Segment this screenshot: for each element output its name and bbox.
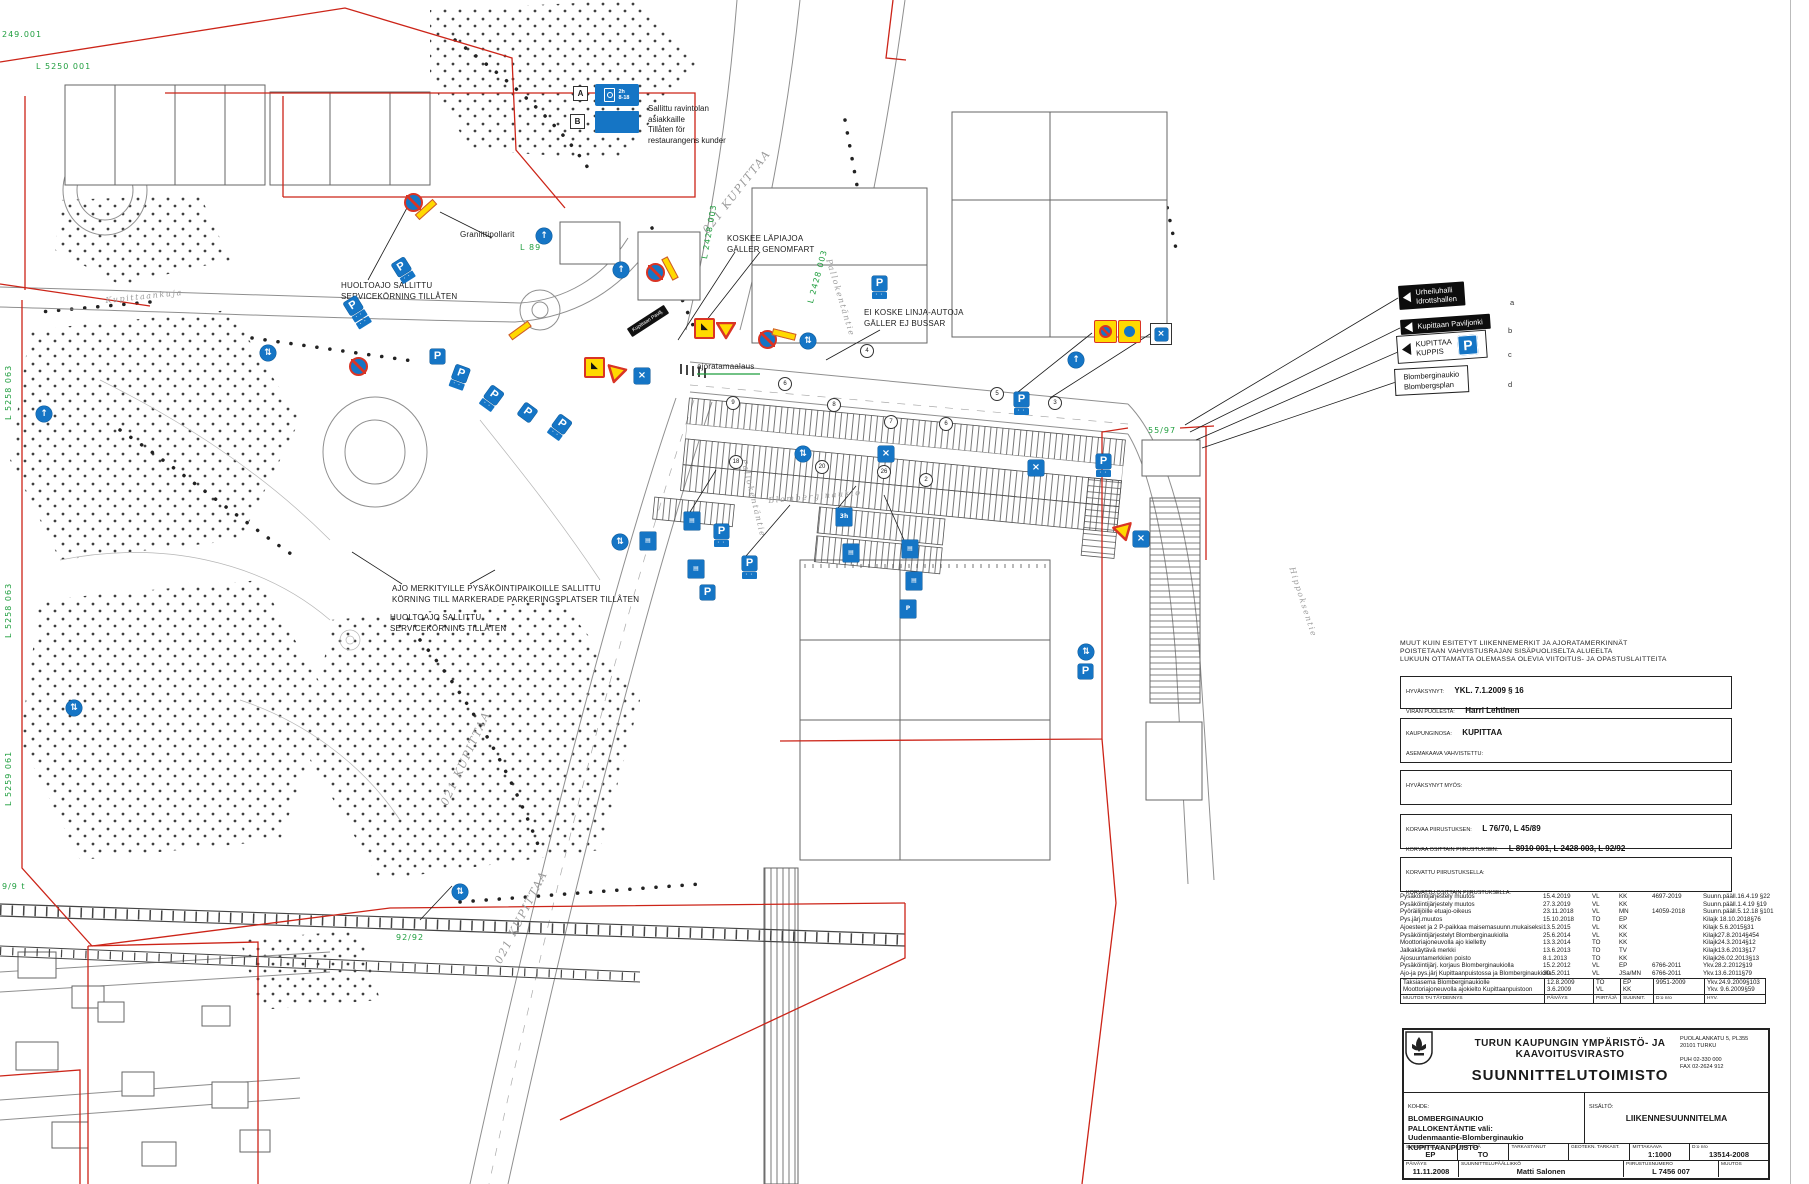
street-label: Kupittaankuja: [105, 288, 183, 305]
legend-sign-blue-area: [595, 111, 639, 133]
title-cell-mittakaava: MITTAKAAVA1:1000: [1629, 1144, 1689, 1160]
title-cell-muutos: MUUTOS: [1718, 1161, 1767, 1177]
title-block: TURUN KAUPUNGIN YMPÄRISTÖ- JA KAAVOITUSV…: [1402, 1028, 1770, 1180]
revision-row: Pysäköintijärj. korjaus Blomberginaukiol…: [1400, 962, 1766, 970]
crossing-arrows-sign: ×: [878, 446, 894, 462]
title-cell-p-iv-ys: PÄIVÄYS11.11.2008: [1404, 1161, 1458, 1177]
legend-key-a: A: [573, 86, 588, 101]
drawing-ref-label: L 2428 003: [806, 249, 829, 305]
street-label: Blomberginaukio: [768, 488, 862, 505]
no-stopping-sign: [646, 263, 665, 282]
revision-table-footer: MUUTOS TAI TÄYDENNYSPÄIVÄYSPIIRTÄJÄSUUNN…: [1401, 994, 1765, 1003]
parking-sign: P: [700, 585, 715, 600]
waypoint-number: 6: [778, 377, 792, 391]
drawing-ref-label: L 5259 061: [4, 751, 13, 806]
drawing-ref-label: L 89: [520, 243, 541, 252]
parking-sign: P· ·: [479, 385, 505, 412]
information-sign: P: [900, 600, 916, 618]
guide-sign-black: Kupittaan Pavilj.: [627, 305, 669, 337]
parking-sign: P· ·: [714, 524, 729, 547]
replaces-part-label: KORVAA OSITTAIN PIIRUSTUKSEN:: [1406, 847, 1498, 853]
mandatory-circle-sign: ⇅: [452, 884, 468, 900]
road-work-sign: ◣: [694, 318, 715, 339]
sisalto-label: SISÄLTÖ:: [1589, 1104, 1613, 1110]
direction-sign-c: KUPITTAAKUPPISP: [1396, 330, 1488, 364]
mandatory-circle-sign: ↑: [36, 406, 52, 422]
waypoint-number: 8: [827, 398, 841, 412]
mandatory-circle-sign: ↑: [613, 262, 629, 278]
behalf-value: Harri Lehtinen: [1465, 706, 1519, 715]
revision-row: Pys.järj.muutos15.10.2018TOEPKilajk 18.1…: [1400, 916, 1766, 924]
approved-value: YKL. 7.1.2009 § 16: [1454, 686, 1523, 695]
title-cell-suunnittelija: SUUNNITTELIJAEP: [1404, 1144, 1457, 1160]
revision-row: Taksiasema Blomberginaukiolle12.8.2009TO…: [1401, 979, 1765, 987]
waypoint-number: 18: [729, 455, 743, 469]
mandatory-yellow-board-sign: [1118, 320, 1141, 343]
drawing-ref-label: 55/97: [1148, 426, 1176, 435]
direction-sign-d: BlomberginaukioBlombergsplan: [1394, 365, 1469, 396]
parking-sign: P· ·: [742, 556, 757, 579]
parking-sign: P· ·: [449, 364, 471, 391]
note-line-2: POISTETAAN VAHVISTUSRAJAN SISÄPUOLISELTA…: [1400, 648, 1730, 656]
revision-row: Ajoesteet ja 2 P-paikkaa maisemasuunn.mu…: [1400, 924, 1766, 932]
mandatory-circle-sign: ⇅: [260, 345, 276, 361]
mandatory-circle-sign: ↑: [536, 228, 552, 244]
mandatory-circle-sign: ⇅: [795, 446, 811, 462]
replaces-label: KORVAA PIIRUSTUKSEN:: [1406, 827, 1472, 833]
arrow-left-icon: UrheiluhalliIdrottshallen: [1398, 281, 1465, 310]
behalf-label: VIRAN PUOLESTA:: [1406, 709, 1455, 715]
sheet-border-line: [1790, 0, 1791, 1184]
revision-row: Moottoriajoneuvolla ajokielto Kupittaanp…: [1401, 986, 1765, 994]
map-annotation: EI KOSKE LINJA-AUTOJAGÄLLER EJ BUSSAR: [864, 308, 964, 329]
parking-sign: P· ·: [1096, 454, 1111, 477]
parking-sign: P: [517, 402, 538, 423]
map-annotation: KOSKEE LÄPIAJOAGÄLLER GENOMFART: [727, 234, 815, 255]
office-name: SUUNNITTELUTOIMISTO: [1460, 1067, 1680, 1084]
also-approved-label: HYVÄKSYNYT MYÖS:: [1406, 783, 1462, 789]
street-label: 021 KUPITTAA: [492, 868, 550, 965]
mandatory-circle-sign: ⇅: [800, 333, 816, 349]
waypoint-number: 6: [939, 417, 953, 431]
title-cell-tarkastanut: TARKASTANUT: [1508, 1144, 1568, 1160]
revision-row: Pyöräilijöille etuajo-oikeus23.11.2018VL…: [1400, 908, 1766, 916]
title-block-cells-row2: PÄIVÄYS11.11.2008SUUNNITTELUPÄÄLLIKKÖMat…: [1404, 1161, 1768, 1177]
crossing-arrows-sign: ×: [1028, 460, 1044, 476]
plan-confirmed-label: ASEMAKAAVA VAHVISTETTU:: [1406, 751, 1483, 757]
waypoint-number: 9: [726, 396, 740, 410]
street-label: Pallokentäntie: [739, 458, 767, 538]
revision-row: Ajo-ja pys.järj Kupittaanpuistossa ja Bl…: [1400, 970, 1766, 978]
replaced-by-label: KORVATTU PIIRUSTUKSELLA:: [1406, 870, 1485, 876]
waypoint-number: 4: [860, 344, 874, 358]
also-approved-box: HYVÄKSYNYT MYÖS:: [1400, 770, 1732, 805]
crossing-arrows-board-sign: ×: [1150, 323, 1172, 345]
crossing-arrows-sign: ×: [634, 368, 650, 384]
district-box: KAUPUNGINOSA: KUPITTAA ASEMAKAAVA VAHVIS…: [1400, 718, 1732, 763]
direction-sign-letter-d: d: [1508, 380, 1512, 389]
drawing-ref-label: L 5258 063: [4, 583, 13, 638]
map-annotation: HUOLTOAJO SALLITTUSERVICEKÖRNING TILLÅTE…: [341, 281, 457, 302]
information-sign: ▤: [843, 544, 859, 562]
map-annotation: HUOLTOAJO SALLITTUSERVICEKÖRNING TILLÅTE…: [390, 613, 506, 634]
map-annotation: ajoratamaalaus: [697, 362, 755, 373]
waypoint-number: 20: [815, 460, 829, 474]
replaces-part-value: L 8910 001, L 2428 003, L 92/92: [1509, 844, 1626, 853]
title-cell-geotekn-tarkast-: GEOTEKN. TARKAST.: [1568, 1144, 1629, 1160]
parking-icon: P: [1457, 334, 1478, 355]
revision-table: Pysäköintijärjestely muutos15.4.2019VLKK…: [1400, 893, 1766, 1004]
drawing-ref-label: 92/92: [396, 933, 424, 942]
street-label: Pallokentäntie: [824, 258, 856, 338]
revision-row: Moottoriajoneuvolla ajo kielletty13.3.20…: [1400, 939, 1766, 947]
title-cell-piirustusnumero: PIIRUSTUSNUMEROL 7456 007: [1623, 1161, 1718, 1177]
no-stopping-yellow-board-sign: [1094, 320, 1117, 343]
revision-row: Pysäköintijärjestely muutos15.4.2019VLKK…: [1400, 893, 1766, 901]
revision-table-boxed: Taksiasema Blomberginaukiolle12.8.2009TO…: [1400, 978, 1766, 1004]
sisalto-value: LIIKENNESUUNNITELMA: [1585, 1113, 1768, 1123]
revision-row: Jalkakäytävä merkki13.6.2013TOTVKilajk13…: [1400, 947, 1766, 955]
parking-sign: P: [1078, 664, 1093, 679]
drawing-ref-label: L 2428 003: [700, 204, 718, 260]
street-label: Hippoksentie: [1287, 566, 1318, 638]
waypoint-number: 3: [1048, 396, 1062, 410]
waypoint-number: 7: [884, 415, 898, 429]
replaced-by-box: KORVATTU PIIRUSTUKSELLA: KORVATTU OSITTA…: [1400, 857, 1732, 892]
barrier-plank-sign: [508, 321, 532, 341]
drawing-ref-label: 9/9 t: [2, 882, 26, 891]
crossing-arrows-sign: ×: [1133, 531, 1149, 547]
district-label: KAUPUNGINOSA:: [1406, 731, 1452, 737]
mandatory-circle-sign: ↑: [1068, 352, 1084, 368]
arrow-left-icon: KUPITTAAKUPPISP: [1396, 330, 1488, 364]
information-sign: ▤: [640, 532, 656, 550]
information-sign: ▤: [902, 540, 918, 558]
mandatory-circle-sign: ⇅: [612, 534, 628, 550]
traffic-plan-sheet: HUOLTOAJO SALLITTUSERVICEKÖRNING TILLÅTE…: [0, 0, 1809, 1184]
parking-sign: P· ·: [872, 276, 887, 299]
waypoint-number: 26: [877, 465, 891, 479]
parking-disc-icon: [604, 88, 615, 102]
title-cell-d-o-nro: D:o nro13514-2008: [1689, 1144, 1768, 1160]
title-cell-suunnittelup-llikk-: SUUNNITTELUPÄÄLLIKKÖMatti Salonen: [1458, 1161, 1623, 1177]
replaces-box: KORVAA PIIRUSTUKSEN: L 76/70, L 45/89 KO…: [1400, 814, 1732, 849]
drawing-ref-label: 249.001: [2, 30, 42, 39]
revision-row: Pysäköintijärjestelyt Blomberginaukiolla…: [1400, 932, 1766, 940]
information-sign: ▤: [684, 512, 700, 530]
parking-sign: P· ·: [1014, 392, 1029, 415]
drawing-ref-label: L 5250 001: [36, 62, 91, 71]
organization-name: TURUN KAUPUNGIN YMPÄRISTÖ- JA KAAVOITUSV…: [1460, 1038, 1680, 1060]
waypoint-number: 2: [919, 473, 933, 487]
district-value: KUPITTAA: [1462, 728, 1502, 737]
map-annotation: Graniittipollarit: [460, 230, 515, 241]
parking-sign: P: [430, 349, 445, 364]
legend-key-b: B: [570, 114, 585, 129]
revision-row: Pysäköintijärjestely muutos27.3.2019VLKK…: [1400, 901, 1766, 909]
note-line-1: MUUT KUIN ESITETYT LIIKENNEMERKIT JA AJO…: [1400, 640, 1730, 648]
information-sign: ▤: [906, 572, 922, 590]
kohde-label: KOHDE:: [1408, 1104, 1429, 1110]
map-overlay: HUOLTOAJO SALLITTUSERVICEKÖRNING TILLÅTE…: [0, 0, 1809, 1184]
general-note: MUUT KUIN ESITETYT LIIKENNEMERKIT JA AJO…: [1400, 640, 1730, 663]
map-annotation: AJO MERKITYILLE PYSÄKÖINTIPAIKOILLE SALL…: [392, 584, 639, 605]
street-label: 021 KUPITTAA: [438, 709, 493, 808]
legend-sign-parking-disc: 2h8-18: [595, 84, 639, 106]
information-sign: ▤: [688, 560, 704, 578]
mandatory-circle-sign: ⇅: [1078, 644, 1094, 660]
title-block-cells-row1: SUUNNITTELIJAEPPIIRTÄJÄTOTARKASTANUTGEOT…: [1404, 1144, 1768, 1161]
note-line-3: LUKUUN OTTAMATTA OLEMASSA OLEVIA VIITOIT…: [1400, 656, 1730, 664]
direction-sign-letter-a: a: [1510, 298, 1514, 307]
direction-sign-a: UrheiluhalliIdrottshallen: [1398, 281, 1465, 310]
information-sign: 3h: [836, 508, 852, 526]
office-address: PUOLALANKATU 5, PL355 20101 TURKU PUH 02…: [1680, 1030, 1768, 1092]
mandatory-circle-sign: ⇅: [66, 700, 82, 716]
direction-sign-letter-b: b: [1508, 326, 1512, 335]
waypoint-number: 5: [990, 387, 1004, 401]
turku-coat-of-arms-icon: [1404, 1030, 1460, 1092]
road-work-sign: ◣: [584, 357, 605, 378]
replaces-value: L 76/70, L 45/89: [1482, 824, 1540, 833]
title-cell-piirt-j-: PIIRTÄJÄTO: [1457, 1144, 1509, 1160]
drawing-ref-label: L 5258 063: [4, 365, 13, 420]
approved-box: HYVÄKSYNYT: YKL. 7.1.2009 § 16 VIRAN PUO…: [1400, 676, 1732, 709]
no-stopping-sign: [349, 357, 368, 376]
direction-sign-letter-c: c: [1508, 350, 1512, 359]
approved-label: HYVÄKSYNYT:: [1406, 689, 1444, 695]
parking-sign: P· ·: [547, 414, 573, 441]
legend-text: Sallittu ravintolan asiakkaille Tillåten…: [648, 104, 726, 146]
revision-row: Ajosuuntamerkkien poisto8.1.2013TOKKKila…: [1400, 955, 1766, 963]
